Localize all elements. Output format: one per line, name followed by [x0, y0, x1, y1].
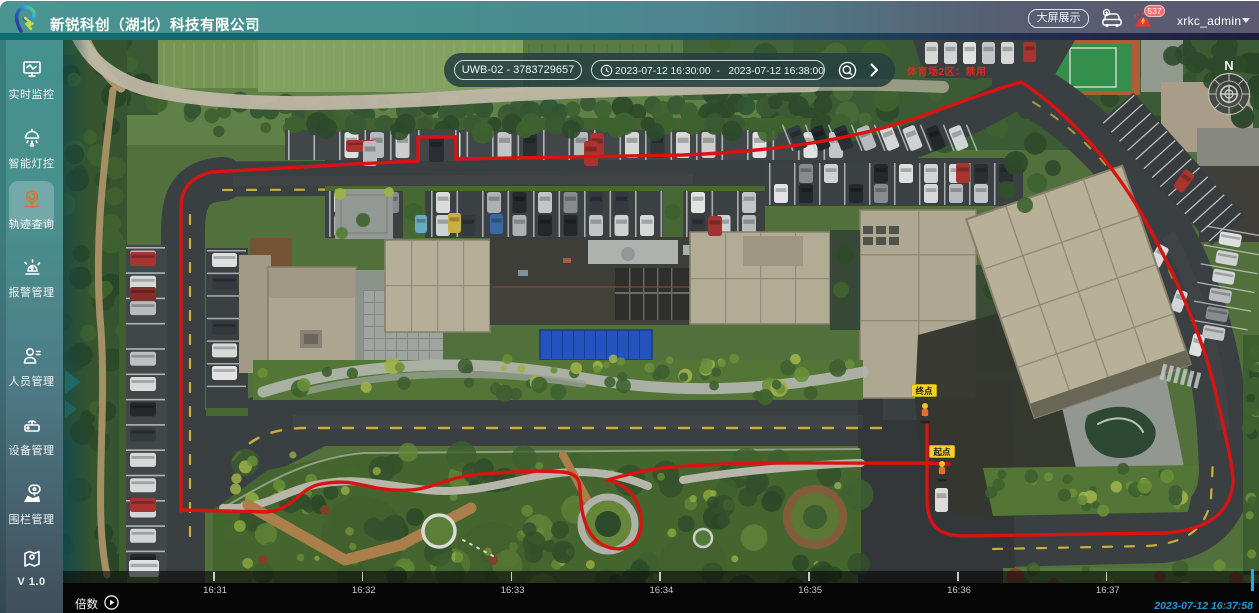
svg-text:N: N — [1224, 58, 1233, 73]
